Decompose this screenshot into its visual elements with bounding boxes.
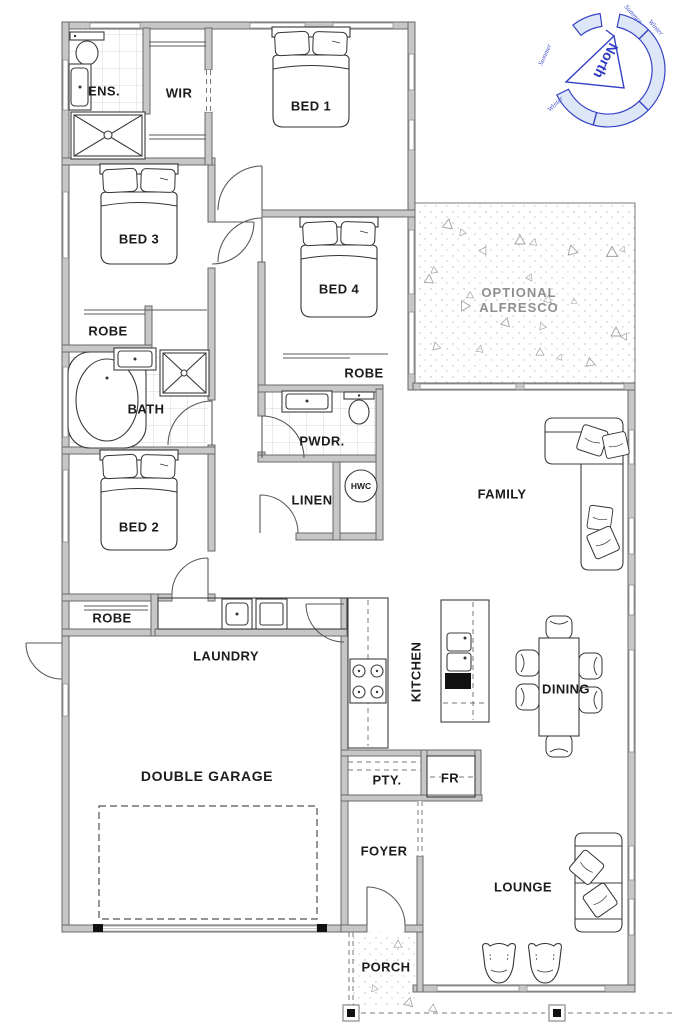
label-fridge: FR bbox=[441, 771, 459, 786]
label-robe-bed4: ROBE bbox=[344, 366, 383, 381]
label-alfresco-line2: ALFRESCO bbox=[479, 301, 559, 316]
label-bed4: BED 4 bbox=[319, 282, 359, 297]
label-foyer: FOYER bbox=[361, 844, 408, 859]
label-ensuite: ENS. bbox=[88, 84, 120, 99]
bed2-furniture bbox=[100, 450, 178, 550]
label-laundry: LAUNDRY bbox=[193, 649, 259, 664]
label-lounge: LOUNGE bbox=[494, 880, 552, 895]
label-bed2: BED 2 bbox=[119, 520, 159, 535]
compass-summer-label-w: Summer bbox=[537, 42, 554, 66]
label-robe-bed2: ROBE bbox=[92, 611, 131, 626]
label-porch: PORCH bbox=[362, 960, 411, 975]
label-bath: BATH bbox=[128, 402, 165, 417]
floor-plan-drawing: North Winter Summer Summer Winter bbox=[0, 0, 677, 1024]
label-family: FAMILY bbox=[478, 487, 527, 502]
label-hwc: HWC bbox=[351, 481, 371, 491]
bed3-furniture bbox=[100, 164, 178, 264]
label-bed1: BED 1 bbox=[291, 99, 331, 114]
label-pwdr: PWDR. bbox=[299, 434, 344, 449]
garage-car-space-outline bbox=[99, 806, 317, 919]
dashed-openings bbox=[205, 70, 423, 856]
north-compass: North Winter Summer Summer Winter bbox=[537, 3, 666, 127]
lounge-furniture bbox=[483, 833, 622, 983]
label-garage: DOUBLE GARAGE bbox=[141, 768, 273, 784]
compass-north-label: North bbox=[590, 41, 621, 82]
laundry-fixtures bbox=[158, 598, 347, 629]
family-sofa bbox=[545, 418, 630, 570]
bed4-furniture bbox=[300, 217, 378, 317]
label-bed3: BED 3 bbox=[119, 232, 159, 247]
floor-plan: North Winter Summer Summer Winter ENS. W… bbox=[0, 0, 677, 1024]
label-dining: DINING bbox=[542, 682, 590, 697]
label-pantry: PTY. bbox=[372, 773, 401, 788]
label-robe-bed3: ROBE bbox=[88, 324, 127, 339]
label-alfresco-line1: OPTIONAL bbox=[479, 286, 559, 301]
label-kitchen: KITCHEN bbox=[409, 642, 424, 703]
label-wir: WIR bbox=[166, 86, 192, 101]
label-linen: LINEN bbox=[292, 493, 333, 508]
label-alfresco: OPTIONAL ALFRESCO bbox=[479, 286, 559, 316]
